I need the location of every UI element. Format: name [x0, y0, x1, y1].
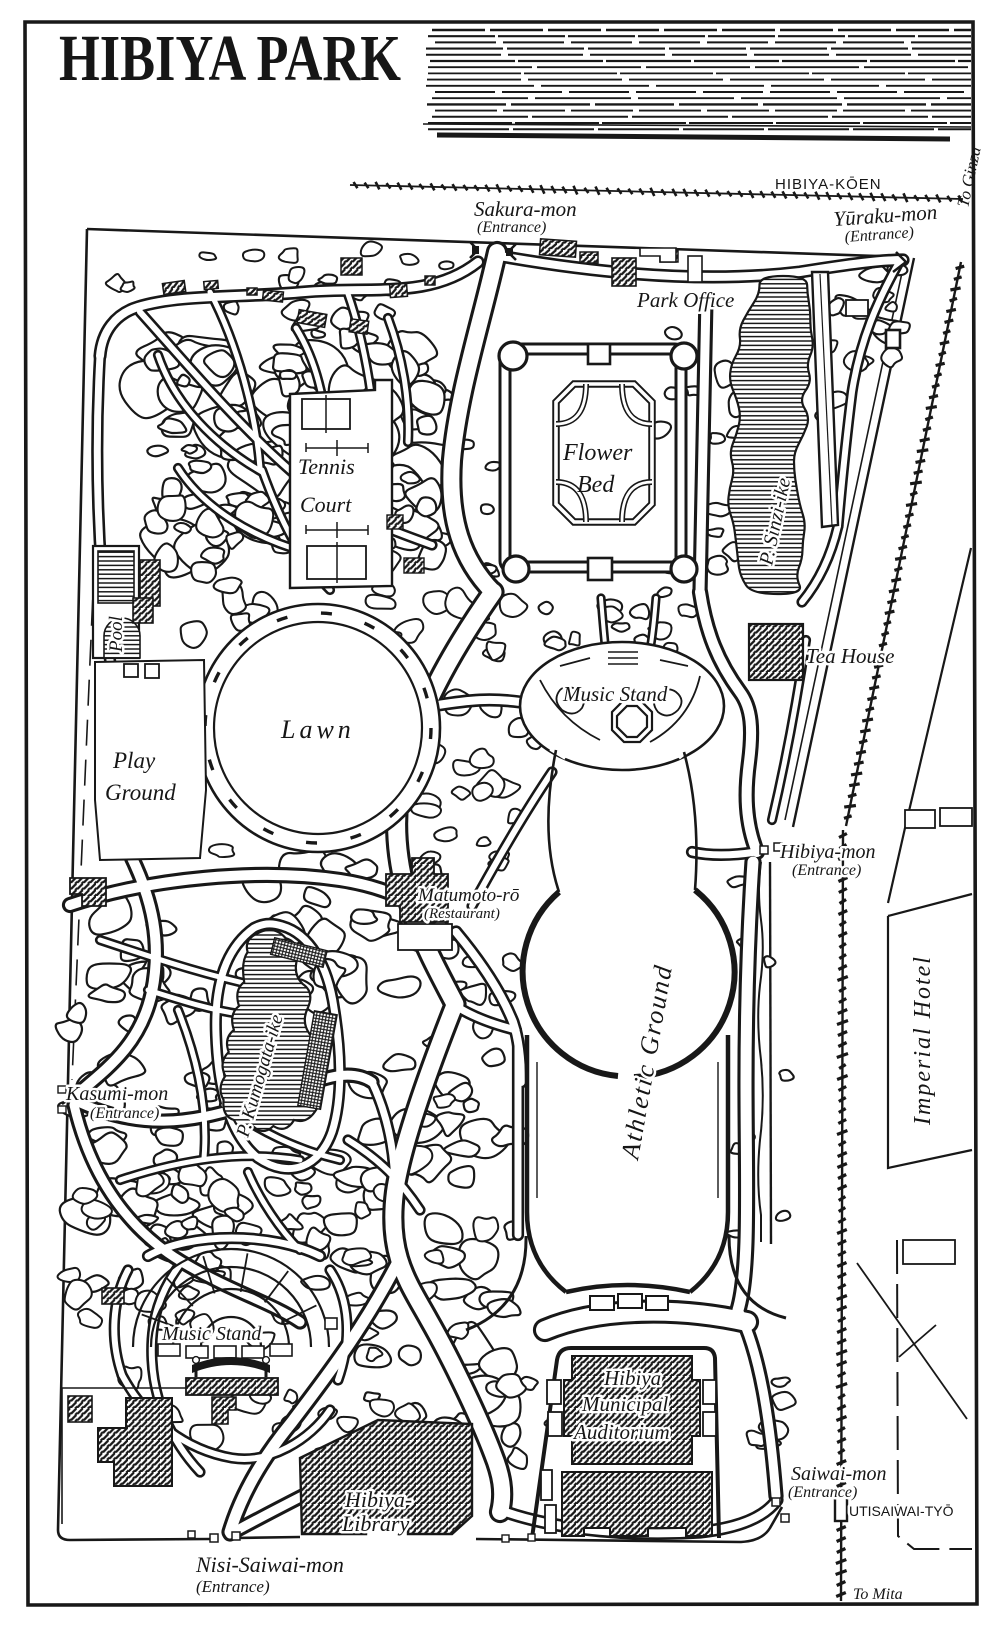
svg-text:Nisi-Saiwai-mon: Nisi-Saiwai-mon [195, 1552, 344, 1577]
svg-text:Music Stand: Music Stand [161, 1323, 262, 1345]
svg-text:Saiwai-mon: Saiwai-mon [791, 1463, 887, 1485]
svg-text:Music Stand: Music Stand [562, 682, 668, 706]
svg-text:Imperial Hotel: Imperial Hotel [910, 955, 936, 1126]
svg-text:Library: Library [341, 1511, 409, 1536]
svg-text:Hibiya-mon: Hibiya-mon [779, 841, 876, 863]
svg-text:Lawn: Lawn [280, 715, 355, 744]
svg-text:(Entrance): (Entrance) [788, 1484, 857, 1501]
svg-text:Tea House: Tea House [806, 644, 894, 668]
svg-text:Flower: Flower [562, 440, 633, 466]
svg-text:Auditorium: Auditorium [572, 1420, 670, 1444]
svg-text:Play: Play [112, 748, 156, 773]
svg-text:Sakura-mon: Sakura-mon [474, 197, 577, 221]
svg-text:Municipal: Municipal [581, 1392, 668, 1416]
svg-text:(Entrance): (Entrance) [792, 862, 861, 879]
svg-text:(Entrance): (Entrance) [90, 1105, 159, 1122]
svg-text:Kasumi-mon: Kasumi-mon [65, 1083, 168, 1105]
svg-text:Hibiya: Hibiya [603, 1366, 661, 1390]
svg-text:Matumoto-rō: Matumoto-rō [417, 885, 520, 906]
svg-text:HIBIYA PARK: HIBIYA PARK [59, 22, 401, 95]
svg-text:(Entrance): (Entrance) [196, 1577, 270, 1596]
svg-text:To Mita: To Mita [853, 1586, 903, 1603]
svg-text:UTISAIWAI-TYŌ: UTISAIWAI-TYŌ [849, 1503, 954, 1519]
svg-text:(Entrance): (Entrance) [477, 219, 546, 236]
svg-text:Pool: Pool [106, 616, 127, 653]
svg-text:HIBIYA-KŌEN: HIBIYA-KŌEN [775, 176, 882, 193]
svg-text:(Restaurant): (Restaurant) [424, 906, 500, 922]
svg-text:Bed: Bed [577, 472, 615, 498]
svg-text:Court: Court [300, 492, 352, 517]
svg-text:Tennis: Tennis [298, 454, 355, 479]
svg-text:Ground: Ground [105, 780, 176, 805]
svg-text:Hibiya-: Hibiya- [344, 1487, 412, 1512]
svg-text:Park Office: Park Office [636, 288, 734, 312]
